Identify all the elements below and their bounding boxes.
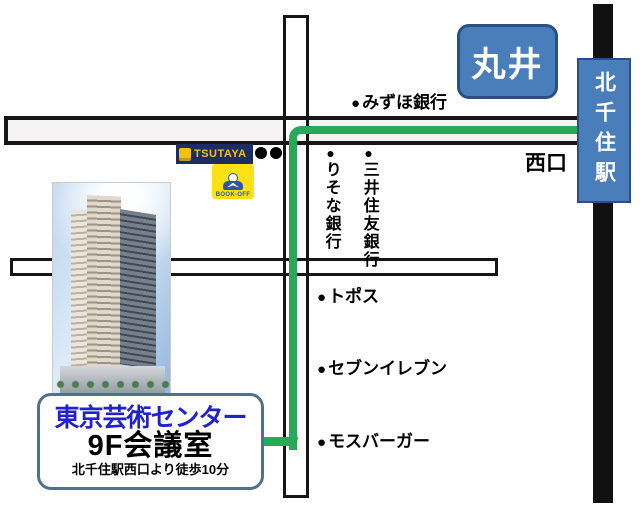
landmark-topos: ●トポス: [317, 282, 379, 307]
landmark-label: モスバーガー: [328, 432, 430, 451]
building-photo: [52, 182, 171, 394]
road-vertical-border-left: [283, 15, 286, 498]
bullet-icon: ●: [351, 95, 360, 112]
road-top-endcap: [4, 116, 8, 145]
west-exit-label: 西口: [525, 147, 567, 177]
road-vertical-endcap-bottom: [283, 495, 309, 498]
station-box: 北千住駅: [577, 58, 631, 203]
building-trees: [53, 374, 170, 393]
map-dot-icon: [270, 147, 282, 159]
landmark-mizuho-bank: ●みずほ銀行: [351, 88, 447, 113]
access-map: 丸井 北千住駅 西口 ●みずほ銀行 ●りそな銀行 ●三井住友銀行 ●トポス ●セ…: [0, 0, 640, 513]
bullet-icon: ●: [317, 361, 326, 378]
bookoff-logo: BOOK-OFF: [212, 164, 254, 199]
building-tower-mid: [87, 195, 121, 370]
landmark-label: トポス: [328, 287, 379, 306]
tsutaya-label: TSUTAYA: [194, 148, 247, 160]
bookoff-label: BOOK-OFF: [216, 191, 250, 199]
tsutaya-mark-icon: [179, 148, 191, 161]
destination-info-box: 東京芸術センター 9F会議室 北千住駅西口より徒歩10分: [37, 393, 264, 490]
bookoff-figure-icon: [221, 173, 245, 191]
road-middle-endcap-left: [10, 258, 13, 276]
landmark-smbc-bank: ●三井住友銀行: [360, 145, 378, 270]
landmark-mos-burger: ●モスバーガー: [317, 427, 430, 452]
landmark-seven-eleven: ●セブンイレブン: [317, 354, 447, 379]
road-vertical-endcap-top: [283, 15, 309, 18]
destination-room: 9F会議室: [88, 432, 214, 461]
route-line-connector: [262, 437, 298, 446]
landmark-label: セブンイレブン: [328, 359, 447, 378]
bullet-icon: ●: [317, 434, 326, 451]
bullet-icon: ●: [323, 145, 339, 161]
landmark-risona-bank: ●りそな銀行: [322, 145, 340, 270]
map-dot-icon: [255, 147, 267, 159]
tsutaya-logo: TSUTAYA: [176, 144, 253, 164]
bullet-icon: ●: [317, 289, 326, 306]
building-tower-left: [71, 210, 89, 371]
building-tower-right: [120, 210, 156, 371]
marui-label: 丸井: [472, 37, 544, 86]
walking-directions-note: 北千住駅西口より徒歩10分: [72, 462, 229, 478]
landmark-label: りそな銀行: [323, 161, 340, 251]
marui-box: 丸井: [457, 24, 558, 99]
station-name: 北千住駅: [594, 71, 615, 191]
destination-name: 東京芸術センター: [54, 405, 246, 431]
bullet-icon: ●: [361, 145, 377, 161]
landmark-label: 三井住友銀行: [361, 161, 378, 269]
road-top-border-top: [4, 116, 577, 120]
landmark-label: みずほ銀行: [362, 93, 447, 112]
